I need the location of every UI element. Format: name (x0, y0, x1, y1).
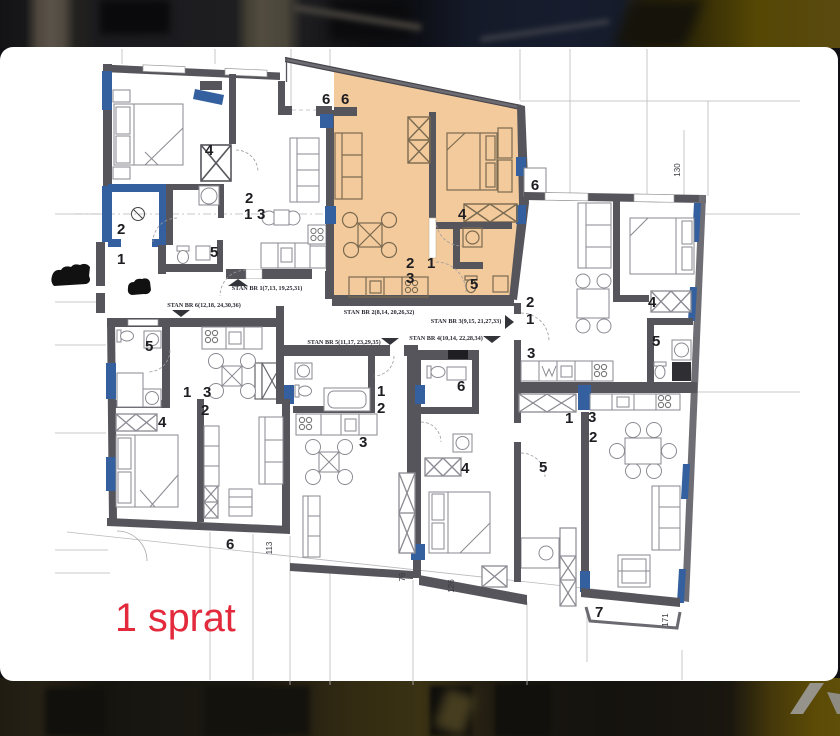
svg-text:171: 171 (661, 613, 670, 627)
svg-text:3: 3 (257, 206, 265, 223)
svg-text:2: 2 (589, 429, 597, 446)
svg-text:1 sprat: 1 sprat (115, 596, 236, 640)
svg-text:3: 3 (527, 345, 535, 362)
svg-text:STAN BR 2(8,14, 20,26,32): STAN BR 2(8,14, 20,26,32) (344, 309, 415, 316)
svg-text:1: 1 (526, 311, 534, 328)
svg-text:5: 5 (145, 338, 153, 355)
svg-text:4: 4 (648, 294, 657, 311)
svg-text:4: 4 (458, 206, 467, 223)
svg-text:113: 113 (265, 541, 274, 554)
svg-text:5: 5 (470, 276, 478, 293)
svg-text:5: 5 (539, 459, 547, 476)
svg-text:1: 1 (117, 251, 125, 268)
svg-text:2: 2 (245, 190, 253, 207)
svg-text:1: 1 (377, 383, 385, 400)
svg-text:4: 4 (205, 142, 214, 159)
svg-text:130: 130 (673, 163, 682, 177)
svg-text:5: 5 (652, 333, 660, 350)
svg-text:5: 5 (210, 244, 218, 261)
svg-text:6: 6 (341, 91, 349, 108)
svg-text:126: 126 (447, 579, 456, 593)
svg-text:7: 7 (595, 604, 603, 621)
svg-text:6: 6 (226, 536, 234, 553)
svg-text:STAN BR 4(10,14, 22,28,34): STAN BR 4(10,14, 22,28,34) (409, 335, 483, 342)
svg-text:1: 1 (244, 206, 252, 223)
svg-text:STAN BR 5(11,17, 23,29,35): STAN BR 5(11,17, 23,29,35) (307, 339, 380, 346)
svg-text:76: 76 (398, 572, 407, 581)
svg-text:STAN BR 1(7,13, 19,25,31): STAN BR 1(7,13, 19,25,31) (232, 285, 303, 292)
svg-text:1: 1 (565, 410, 573, 427)
svg-text:1: 1 (183, 384, 191, 401)
svg-text:3: 3 (588, 409, 596, 426)
svg-text:2: 2 (201, 402, 209, 419)
svg-text:3: 3 (203, 384, 211, 401)
svg-text:6: 6 (457, 378, 465, 395)
svg-text:4: 4 (158, 414, 167, 431)
svg-text:3: 3 (406, 270, 414, 287)
svg-text:6: 6 (531, 177, 539, 194)
svg-text:2: 2 (526, 294, 534, 311)
svg-text:4: 4 (461, 460, 470, 477)
svg-text:1: 1 (427, 255, 435, 272)
svg-text:STAN BR 6(12,18, 24,30,36): STAN BR 6(12,18, 24,30,36) (167, 302, 241, 309)
svg-text:6: 6 (322, 91, 330, 108)
svg-text:2: 2 (377, 400, 385, 417)
svg-text:2: 2 (117, 221, 125, 238)
svg-text:3: 3 (359, 434, 367, 451)
svg-text:STAN BR 3(9,15, 21,27,33): STAN BR 3(9,15, 21,27,33) (431, 318, 502, 325)
